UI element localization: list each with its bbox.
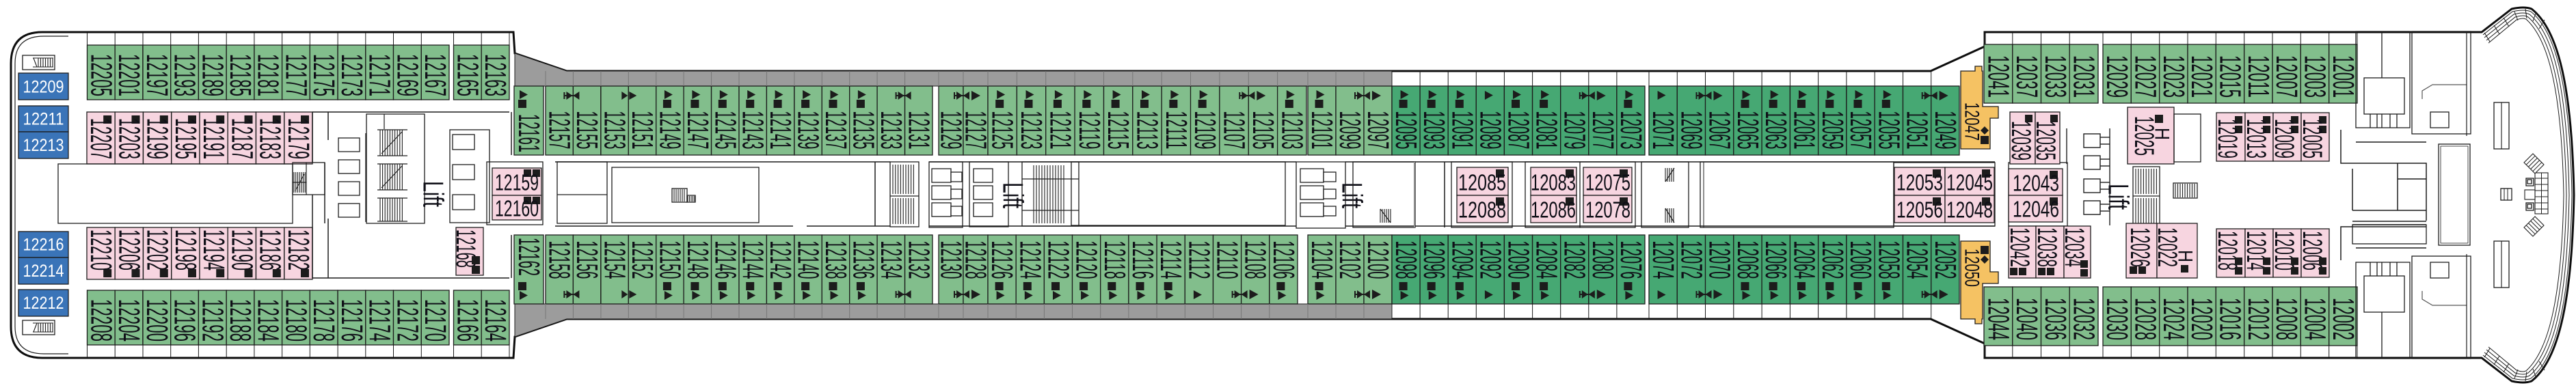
svg-text:12005: 12005 xyxy=(2297,119,2327,158)
svg-text:12056: 12056 xyxy=(1896,197,1943,223)
svg-text:12132: 12132 xyxy=(902,241,935,279)
svg-text:12179: 12179 xyxy=(282,118,315,159)
svg-text:12047: 12047 xyxy=(1961,102,1983,141)
svg-text:12050: 12050 xyxy=(1961,249,1983,287)
svg-text:12019: 12019 xyxy=(2212,119,2242,158)
svg-text:12044: 12044 xyxy=(1981,298,2015,340)
svg-text:12106: 12106 xyxy=(1267,241,1300,279)
svg-text:12049: 12049 xyxy=(1929,111,1962,150)
svg-text:12209: 12209 xyxy=(23,78,64,97)
svg-text:12038: 12038 xyxy=(2032,227,2062,267)
svg-text:12025: 12025 xyxy=(2129,116,2159,156)
svg-text:12037: 12037 xyxy=(2010,55,2043,98)
svg-text:12002: 12002 xyxy=(2326,298,2360,340)
svg-text:12119: 12119 xyxy=(1073,111,1106,150)
svg-text:12031: 12031 xyxy=(2067,55,2101,98)
svg-text:12052: 12052 xyxy=(1929,241,1962,279)
svg-text:12160: 12160 xyxy=(495,196,539,221)
svg-text:12009: 12009 xyxy=(2269,119,2299,158)
svg-text:12164: 12164 xyxy=(479,299,512,342)
svg-text:12113: 12113 xyxy=(1131,111,1164,150)
svg-text:12167: 12167 xyxy=(418,54,452,96)
svg-text:12159: 12159 xyxy=(495,170,539,195)
svg-text:12036: 12036 xyxy=(2039,298,2072,340)
svg-text:12026: 12026 xyxy=(2125,227,2155,267)
svg-text:12048: 12048 xyxy=(1946,197,1993,223)
svg-text:12088: 12088 xyxy=(1458,197,1506,223)
svg-text:12086: 12086 xyxy=(1531,197,1576,223)
svg-text:12103: 12103 xyxy=(1275,111,1309,150)
svg-text:12085: 12085 xyxy=(1458,170,1506,195)
svg-text:12131: 12131 xyxy=(902,111,935,150)
svg-text:12170: 12170 xyxy=(418,299,452,342)
svg-text:12125: 12125 xyxy=(986,111,1019,150)
svg-text:12109: 12109 xyxy=(1188,111,1222,150)
svg-text:12115: 12115 xyxy=(1101,111,1135,150)
svg-text:12123: 12123 xyxy=(1015,111,1048,150)
svg-text:12216: 12216 xyxy=(23,236,64,255)
svg-text:12212: 12212 xyxy=(23,294,64,313)
svg-text:12045: 12045 xyxy=(1946,170,1993,195)
svg-text:12033: 12033 xyxy=(2039,55,2072,98)
svg-text:12001: 12001 xyxy=(2326,55,2360,98)
svg-text:12078: 12078 xyxy=(1585,197,1631,223)
svg-text:12053: 12053 xyxy=(1896,170,1943,195)
svg-text:12213: 12213 xyxy=(23,136,64,155)
svg-text:12211: 12211 xyxy=(23,110,64,129)
svg-text:12105: 12105 xyxy=(1246,111,1280,150)
svg-text:12182: 12182 xyxy=(282,229,315,270)
svg-text:12075: 12075 xyxy=(1585,170,1631,195)
svg-text:Lift: Lift xyxy=(997,182,1030,208)
svg-text:12040: 12040 xyxy=(2010,298,2043,340)
svg-text:Lift: Lift xyxy=(1337,182,1369,208)
svg-text:12161: 12161 xyxy=(512,114,546,152)
svg-text:12163: 12163 xyxy=(479,54,512,96)
svg-text:12032: 12032 xyxy=(2067,298,2101,340)
svg-text:12035: 12035 xyxy=(2030,121,2061,161)
svg-text:12046: 12046 xyxy=(2013,197,2059,222)
svg-text:12162: 12162 xyxy=(512,238,546,276)
svg-text:12083: 12083 xyxy=(1531,170,1576,195)
svg-text:12111: 12111 xyxy=(1159,111,1193,150)
svg-text:12214: 12214 xyxy=(23,262,64,281)
svg-text:H: H xyxy=(2174,250,2197,262)
svg-text:Lift: Lift xyxy=(418,181,450,207)
svg-text:12013: 12013 xyxy=(2241,119,2271,158)
svg-text:12107: 12107 xyxy=(1218,111,1251,150)
svg-text:12121: 12121 xyxy=(1043,111,1077,150)
svg-text:12042: 12042 xyxy=(2004,227,2035,267)
svg-text:12041: 12041 xyxy=(1981,55,2015,98)
svg-text:12073: 12073 xyxy=(1614,111,1648,150)
svg-text:12076: 12076 xyxy=(1614,241,1648,279)
svg-text:12043: 12043 xyxy=(2013,171,2059,196)
svg-text:Lift: Lift xyxy=(2103,184,2135,210)
